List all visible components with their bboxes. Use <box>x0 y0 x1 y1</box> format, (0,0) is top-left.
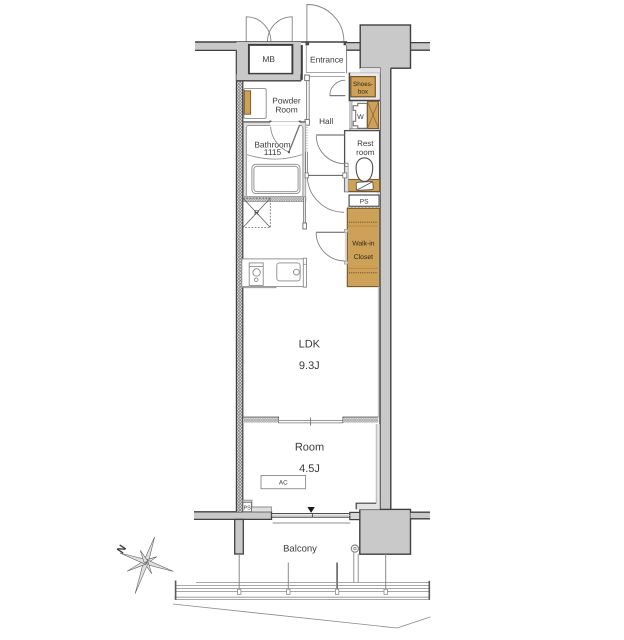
svg-text:Closet: Closet <box>354 254 373 261</box>
svg-text:box: box <box>358 88 369 95</box>
svg-text:PS: PS <box>360 199 369 206</box>
svg-text:1115: 1115 <box>264 147 282 157</box>
svg-text:Hall: Hall <box>319 117 333 126</box>
svg-text:Room: Room <box>275 104 297 114</box>
svg-text:LDK: LDK <box>299 339 321 351</box>
svg-text:9.3J: 9.3J <box>299 360 320 372</box>
svg-text:Entrance: Entrance <box>310 54 344 64</box>
svg-text:MB: MB <box>262 54 275 64</box>
svg-text:PS: PS <box>243 505 251 511</box>
svg-text:Rest: Rest <box>357 139 374 148</box>
svg-text:Balcony: Balcony <box>283 544 317 555</box>
svg-text:W: W <box>357 114 364 121</box>
svg-text:Walk-in: Walk-in <box>352 240 375 247</box>
svg-text:4.5J: 4.5J <box>299 463 320 475</box>
svg-text:Room: Room <box>295 441 324 453</box>
svg-text:Shoes-: Shoes- <box>353 81 373 88</box>
svg-text:R: R <box>254 210 259 217</box>
svg-text:AC: AC <box>279 480 288 487</box>
svg-text:room: room <box>356 148 375 157</box>
